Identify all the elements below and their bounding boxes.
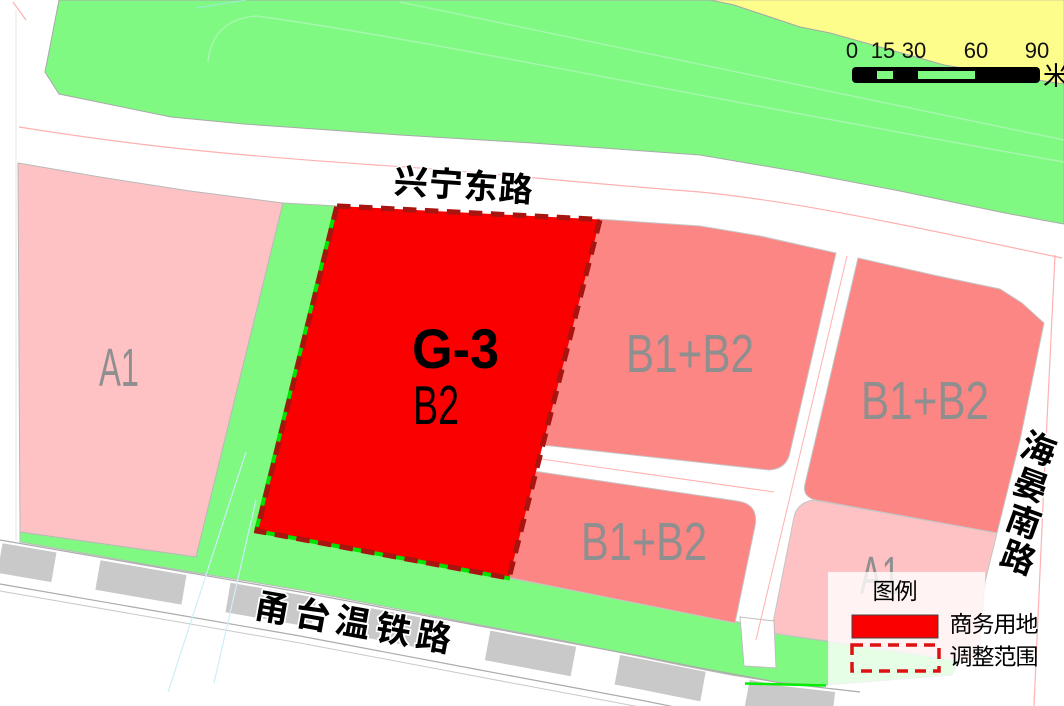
svg-text:15: 15 — [871, 38, 895, 63]
svg-text:B1+B2: B1+B2 — [626, 324, 754, 384]
svg-text:0: 0 — [846, 38, 858, 63]
svg-text:60: 60 — [964, 38, 988, 63]
svg-text:B1+B2: B1+B2 — [861, 371, 989, 431]
svg-text:A1: A1 — [99, 338, 139, 398]
svg-text:B1+B2: B1+B2 — [581, 512, 707, 572]
svg-text:B2: B2 — [413, 374, 459, 436]
svg-text:G-3: G-3 — [412, 317, 499, 380]
svg-text:90: 90 — [1025, 38, 1049, 63]
svg-text:30: 30 — [902, 38, 926, 63]
